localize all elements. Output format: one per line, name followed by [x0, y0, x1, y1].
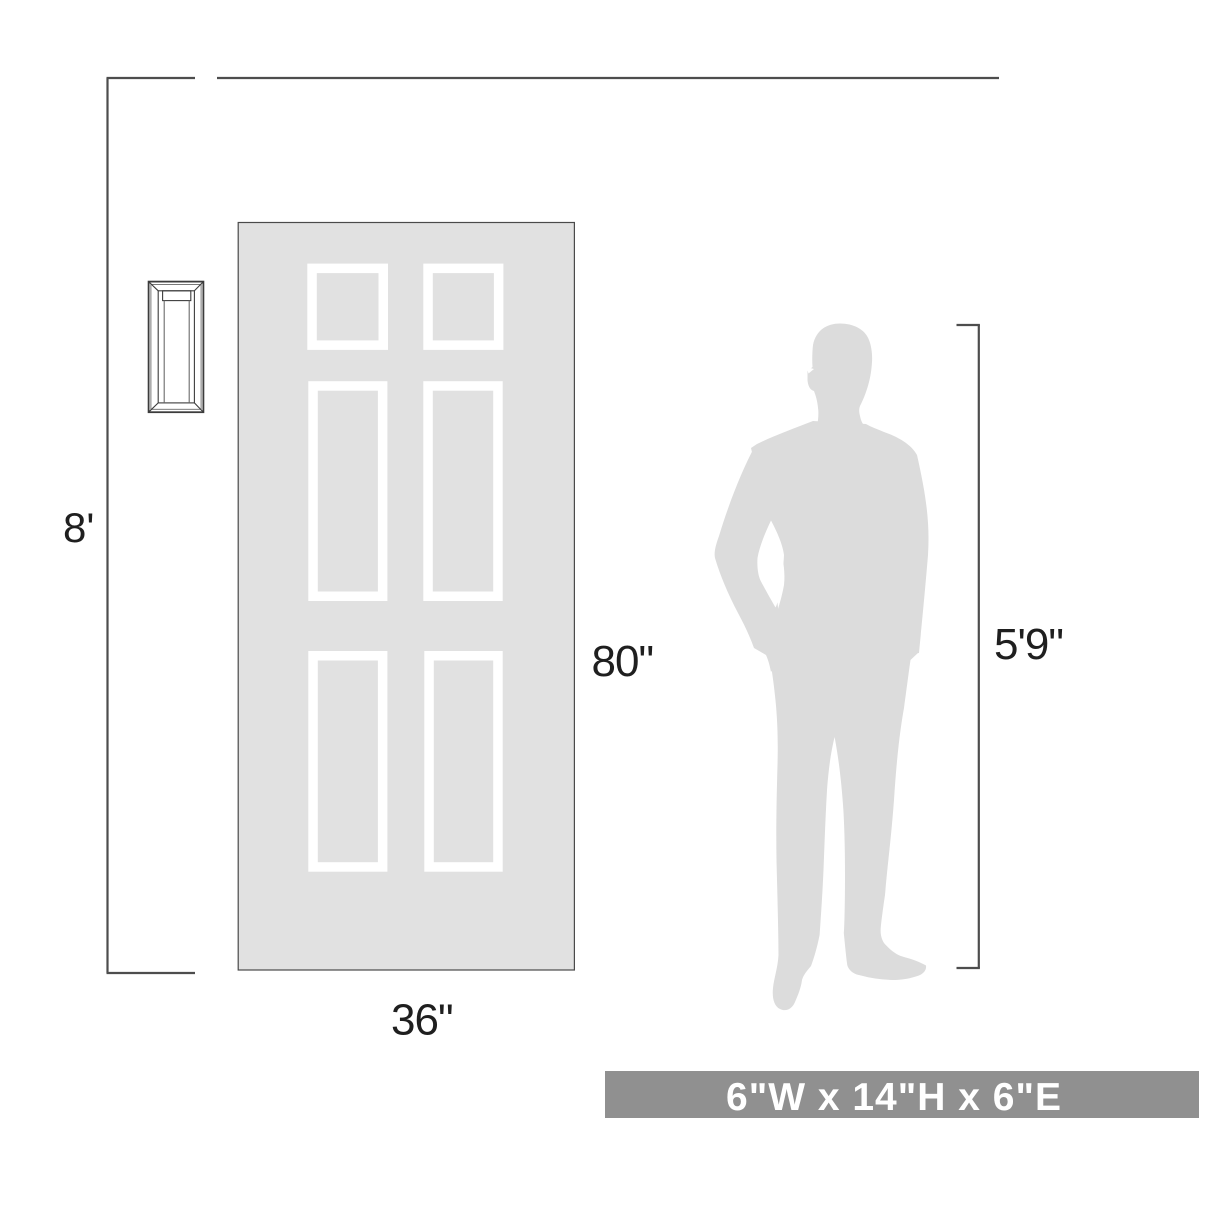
svg-text:36": 36": [391, 996, 453, 1045]
svg-text:6"W x 14"H x 6"E: 6"W x 14"H x 6"E: [726, 1076, 1062, 1119]
svg-text:5'9": 5'9": [994, 620, 1063, 669]
svg-text:80": 80": [592, 637, 654, 686]
svg-text:8': 8': [63, 504, 94, 551]
